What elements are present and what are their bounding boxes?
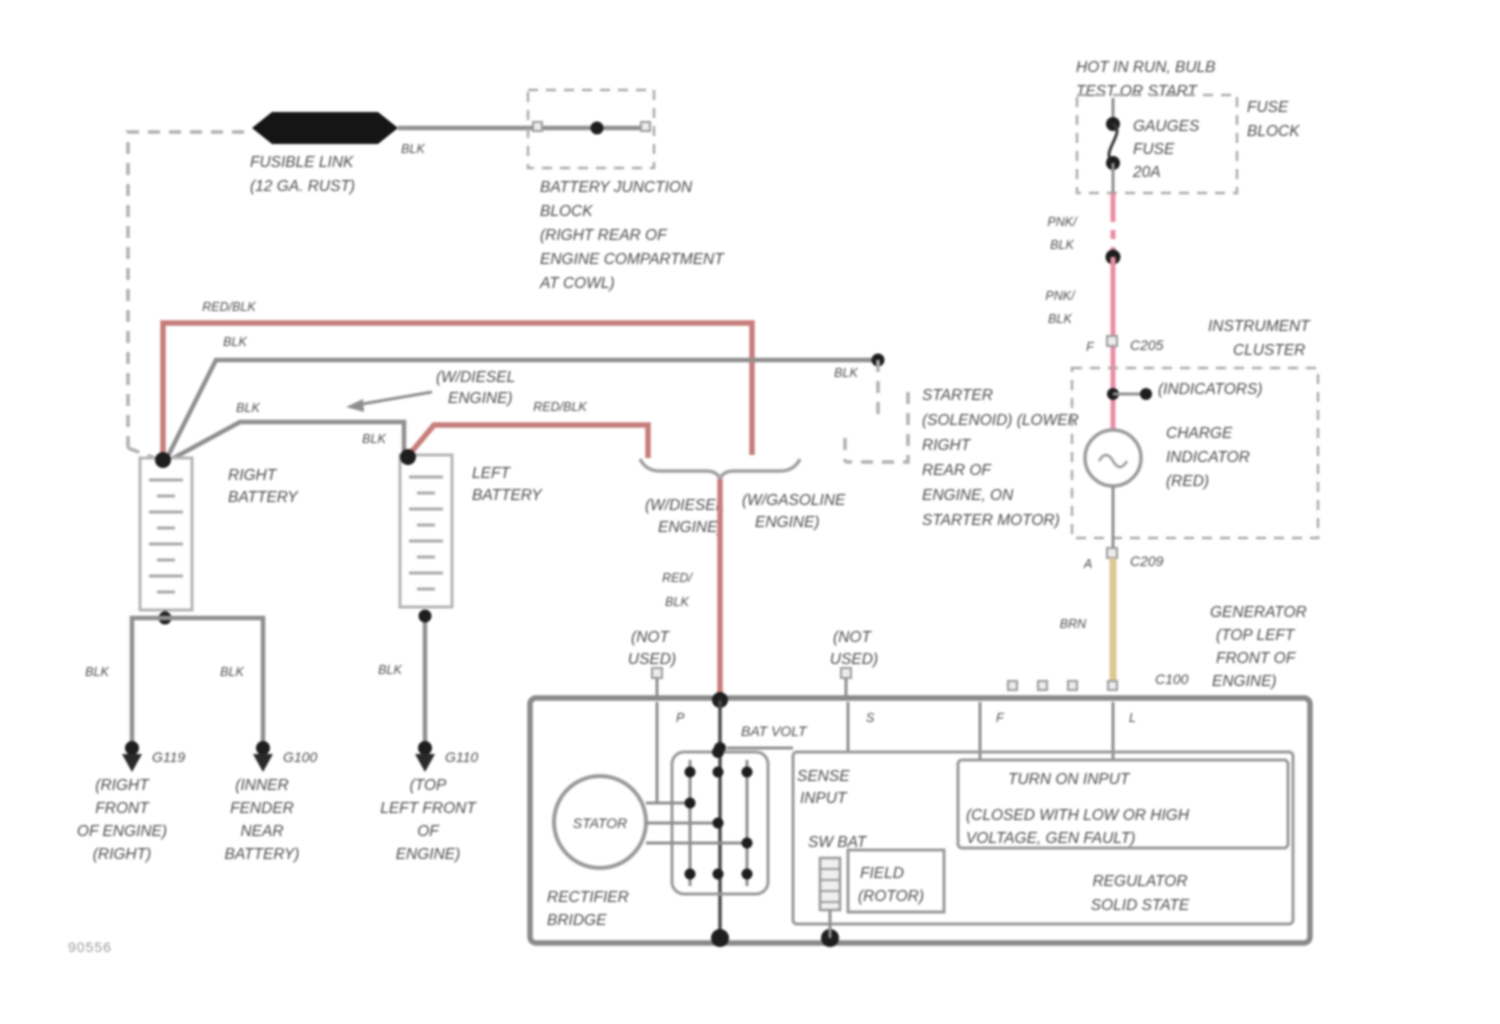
charge-indicator-label: CHARGE — [1166, 425, 1233, 442]
ground-location: BATTERY) — [225, 846, 300, 863]
c100-terminal — [1008, 681, 1017, 690]
hot-feed-label: HOT IN RUN, BULB — [1076, 59, 1216, 76]
junction-block-label: ENGINE COMPARTMENT — [540, 251, 725, 268]
wire-label-blk: BLK — [378, 663, 402, 677]
wire-label-pnk: PNK/ — [1045, 289, 1076, 303]
fuse-label: FUSE — [1133, 141, 1175, 158]
ground-id: G119 — [152, 749, 185, 765]
unused-terminal — [652, 668, 662, 678]
gasoline-variant-label: ENGINE) — [755, 514, 820, 531]
fault-note-label: (CLOSED WITH LOW OR HIGH — [966, 807, 1190, 824]
ground-location: (RIGHT — [95, 777, 150, 794]
right-battery-positive-dot — [155, 452, 171, 468]
blk-wire-to-solenoid — [167, 360, 878, 458]
left-battery-positive-dot — [400, 449, 416, 465]
ground-dot — [256, 741, 270, 755]
diesel-callout-label: ENGINE) — [448, 390, 513, 407]
generator-title: ENGINE) — [1212, 673, 1277, 690]
fusible-link-label: (12 GA. RUST) — [250, 178, 355, 195]
wire-label-blk: BLK — [220, 665, 244, 679]
left-battery-label: BATTERY — [472, 487, 543, 504]
junction-block-label: (RIGHT REAR OF — [540, 227, 668, 244]
wire-label-blk: BLK — [834, 366, 858, 380]
sw-bat-label: SW BAT — [808, 834, 868, 851]
connector-terminal — [1107, 336, 1117, 346]
bat-volt-label: BAT VOLT — [741, 723, 808, 739]
dashed-feed-wire — [128, 132, 252, 448]
terminal-letter: F — [1086, 340, 1095, 354]
wire-label-blk: BLK — [223, 335, 247, 349]
ground-wires: BLK BLK BLK G119 (RIGHT FRONT OF ENGINE)… — [77, 610, 478, 864]
ground-icon — [253, 754, 273, 772]
red-blk-wire-left-battery — [408, 425, 648, 458]
starter-label: STARTER MOTOR) — [922, 512, 1060, 529]
starter-label: STARTER — [922, 387, 993, 404]
turn-on-input-label: TURN ON INPUT — [1008, 771, 1131, 788]
right-battery-label: RIGHT — [228, 467, 278, 484]
terminal-letter-p: P — [676, 711, 685, 725]
junction-block-label: AT COWL) — [539, 275, 615, 292]
diesel-callout-label: (W/DIESEL — [436, 369, 515, 386]
wire-label-blk: BLK — [236, 401, 260, 415]
ground-splice-dot — [419, 610, 432, 623]
diesel-callout-line — [362, 392, 432, 404]
ground-location: LEFT FRONT — [380, 800, 477, 817]
junction-block-label: BATTERY JUNCTION — [540, 179, 693, 196]
ground-icon — [415, 754, 435, 772]
ground-location: (TOP — [410, 777, 447, 794]
fusible-link-circuit: BLK FUSIBLE LINK (12 GA. RUST) BATTERY J… — [128, 90, 725, 459]
junction-terminal — [533, 122, 542, 131]
terminal-letter-l: L — [1129, 711, 1136, 725]
wire-label-red: RED/ — [662, 571, 693, 585]
battery-feed-wires: RED/BLK BLK BLK BLK BLK RED/BLK (W/DIESE… — [163, 300, 908, 462]
branch-dot — [1140, 388, 1152, 400]
charge-indicator-label: INDICATOR — [1166, 449, 1250, 466]
fuse-rating: 20A — [1132, 164, 1161, 181]
generator: C100 GENERATOR (TOP LEFT FRONT OF ENGINE… — [530, 604, 1310, 947]
terminal-letter: A — [1083, 557, 1092, 571]
blk-ground-wire-1 — [132, 618, 165, 745]
field-label: FIELD — [860, 865, 904, 882]
unused-terminal — [841, 668, 851, 678]
wiring-diagram-sheet: BLK FUSIBLE LINK (12 GA. RUST) BATTERY J… — [0, 0, 1500, 1024]
wire-label-blk: BLK — [362, 432, 386, 446]
fuse-block-label: FUSE — [1247, 99, 1289, 116]
junction-splice-dot — [591, 122, 604, 135]
left-battery-label: LEFT — [472, 465, 511, 482]
not-used-label: (NOT — [631, 629, 670, 646]
left-battery: LEFT BATTERY — [400, 449, 543, 607]
terminal-letter-s: S — [866, 711, 875, 725]
wire-label-blk: BLK — [401, 142, 425, 156]
charge-indicator-label: (RED) — [1166, 473, 1209, 490]
ground-location: OF — [417, 823, 440, 840]
ground-icon — [122, 754, 142, 772]
cluster-title: INSTRUMENT — [1208, 318, 1311, 335]
starter-label: ENGINE, ON — [922, 487, 1014, 504]
sense-input-label: INPUT — [800, 790, 848, 807]
connector-terminal — [1107, 548, 1117, 558]
wire-label-brn: BRN — [1060, 617, 1087, 631]
case-ground-dot — [711, 929, 729, 947]
blk-ground-wire-2 — [165, 618, 263, 745]
starter-label: RIGHT — [922, 437, 972, 454]
arrow-left-icon — [346, 399, 364, 412]
connector-id: C209 — [1130, 553, 1164, 569]
regulator-label: SOLID STATE — [1091, 897, 1190, 914]
terminal-letter-f: F — [996, 711, 1005, 725]
fuse-block: HOT IN RUN, BULB TEST OR START GAUGES FU… — [1076, 59, 1300, 193]
c100-terminal — [1038, 681, 1047, 690]
fault-note-label: VOLTAGE, GEN FAULT) — [966, 830, 1135, 847]
indicators-label: (INDICATORS) — [1158, 381, 1262, 398]
field-label: (ROTOR) — [858, 888, 924, 905]
wire-label-red-blk: RED/BLK — [533, 400, 587, 414]
brace-icon — [640, 459, 800, 479]
ground-location: (INNER — [235, 777, 288, 794]
ground-location: (RIGHT) — [93, 846, 152, 863]
not-used-label: USED) — [628, 651, 676, 668]
junction-block-label: BLOCK — [540, 203, 593, 220]
junction-terminal — [641, 122, 650, 131]
connector-id: C100 — [1155, 671, 1189, 687]
ground-id: G100 — [283, 749, 317, 765]
diesel-variant-label: ENGINE) — [658, 519, 723, 536]
generator-title: GENERATOR — [1210, 604, 1307, 621]
wire-label-blk: BLK — [85, 665, 109, 679]
ground-dot — [125, 741, 139, 755]
wire-label-pnk: BLK — [1048, 312, 1072, 326]
ground-location: OF ENGINE) — [77, 823, 167, 840]
regulator-label: REGULATOR — [1092, 873, 1187, 890]
starter-solenoid: STARTER (SOLENOID) (LOWER RIGHT REAR OF … — [922, 387, 1079, 529]
not-used-label: USED) — [830, 651, 878, 668]
right-battery: RIGHT BATTERY — [140, 452, 299, 610]
generator-title: FRONT OF — [1216, 650, 1297, 667]
generator-title: (TOP LEFT — [1216, 627, 1296, 644]
c100-terminal — [1108, 681, 1117, 690]
rectifier-label: BRIDGE — [547, 912, 607, 929]
fuse-block-label: BLOCK — [1247, 123, 1300, 140]
page-code: 90556 — [68, 939, 112, 955]
starter-label: (SOLENOID) (LOWER — [922, 412, 1079, 429]
ground-location: FENDER — [230, 800, 294, 817]
c100-terminal — [1068, 681, 1077, 690]
right-battery-label: BATTERY — [228, 489, 299, 506]
ground-location: NEAR — [240, 823, 283, 840]
ground-dot — [418, 741, 432, 755]
hot-feed-label: TEST OR START — [1076, 83, 1198, 100]
starter-label: REAR OF — [922, 462, 992, 479]
wire-label-red-blk: RED/BLK — [202, 300, 256, 314]
fuse-label: GAUGES — [1133, 118, 1200, 135]
charging-circuit-diagram: BLK FUSIBLE LINK (12 GA. RUST) BATTERY J… — [0, 0, 1500, 1024]
charge-bulb-icon — [1085, 430, 1141, 486]
ground-id: G110 — [445, 749, 478, 765]
wire-label-pnk: BLK — [1050, 238, 1074, 252]
stator-label: STATOR — [573, 815, 627, 831]
connector-id: C205 — [1130, 337, 1164, 353]
bulb-filament-icon — [1099, 455, 1127, 467]
rectifier-label: RECTIFIER — [547, 889, 629, 906]
fusible-link-symbol — [252, 112, 398, 144]
wire-label-blk: BLK — [665, 595, 689, 609]
not-used-label: (NOT — [833, 629, 872, 646]
ground-location: ENGINE) — [396, 846, 461, 863]
fusible-link-label: FUSIBLE LINK — [250, 154, 354, 171]
sense-input-label: SENSE — [797, 768, 850, 785]
cluster-title: CLUSTER — [1233, 342, 1305, 359]
ground-location: FRONT — [95, 800, 150, 817]
wire-label-pnk: PNK/ — [1047, 215, 1078, 229]
diesel-variant-label: (W/DIESEL — [645, 497, 724, 514]
gasoline-variant-label: (W/GASOLINE — [742, 492, 846, 509]
